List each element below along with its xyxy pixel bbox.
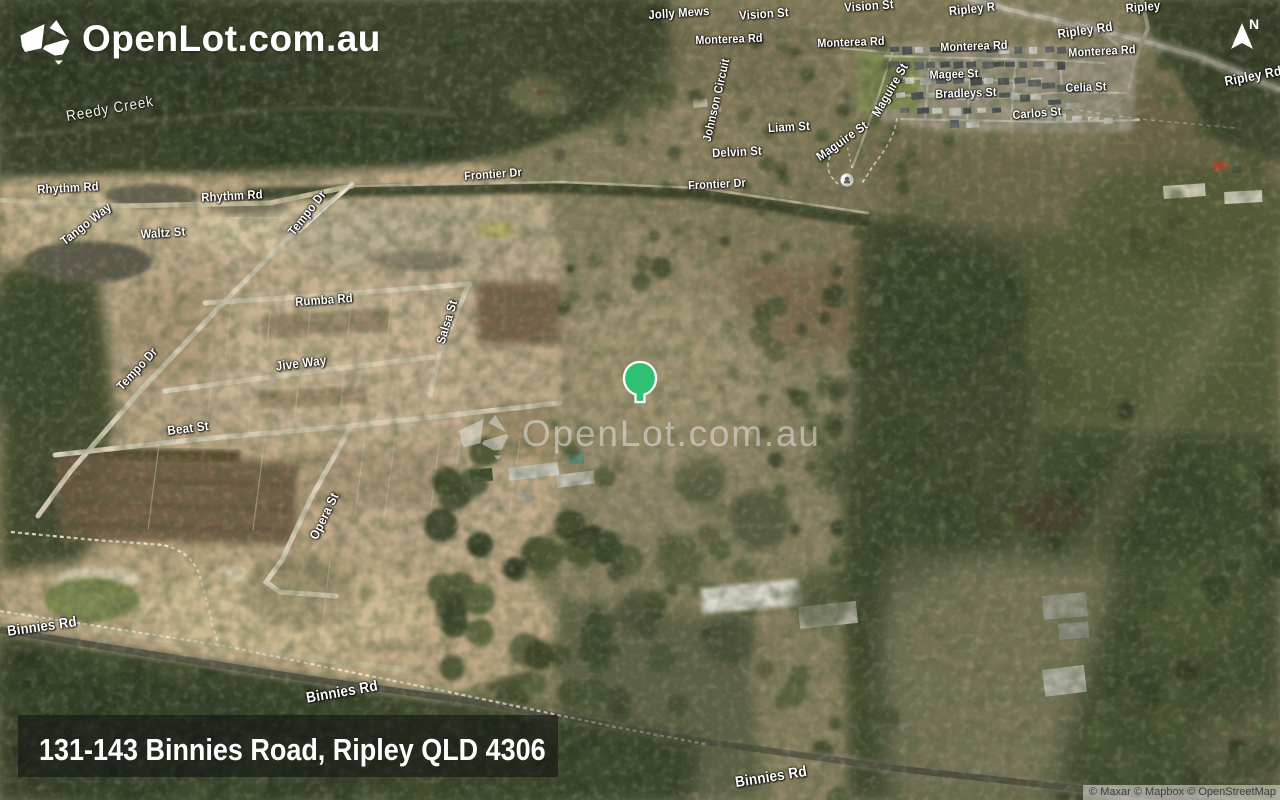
svg-text:N: N [1249, 16, 1259, 32]
